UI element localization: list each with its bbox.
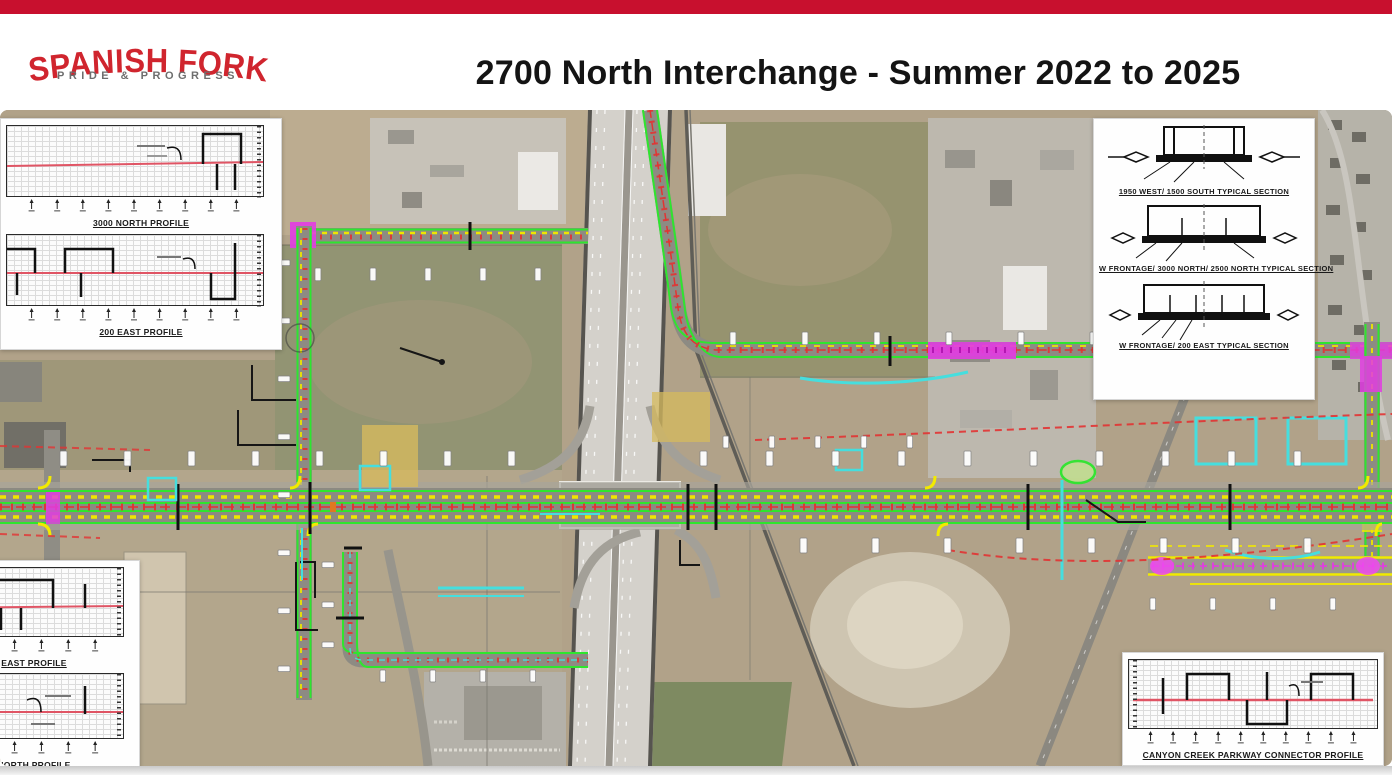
profile-title: 200 EAST PROFILE (6, 327, 276, 337)
section-title: 1950 WEST/ 1500 SOUTH TYPICAL SECTION (1099, 187, 1309, 196)
slide: SPANISH FORK PRIDE & PROGRESS 2700 North… (0, 0, 1392, 775)
logo-tagline: PRIDE & PROGRESS (36, 70, 260, 82)
profile-chart-canyon-creek (1128, 659, 1378, 729)
typical-section-w-frontage-200e: W FRONTAGE/ 200 EAST TYPICAL SECTION (1099, 281, 1309, 350)
inset-profiles-top-left: 3000 NORTH PROFILE 200 EAST PROFILE (0, 118, 282, 350)
section-title: W FRONTAGE/ 200 EAST TYPICAL SECTION (1099, 341, 1309, 350)
profile-chart-north (0, 673, 124, 739)
section-title: W FRONTAGE/ 3000 NORTH/ 2500 NORTH TYPIC… (1099, 264, 1309, 273)
typical-section-1950-west: 1950 WEST/ 1500 SOUTH TYPICAL SECTION (1099, 125, 1309, 196)
inset-profile-bottom-right: CANYON CREEK PARKWAY CONNECTOR PROFILE (1122, 652, 1384, 766)
construction-plan-map: 3000 NORTH PROFILE 200 EAST PROFILE (0, 110, 1392, 766)
bottom-edge-strip (0, 766, 1392, 775)
profile-title: CANYON CREEK PARKWAY CONNECTOR PROFILE (1128, 750, 1378, 760)
top-accent-bar (0, 0, 1392, 14)
inset-profiles-bottom-left: EAST PROFILE NORTH PROFILE (0, 560, 140, 766)
profile-chart-200-east (6, 234, 264, 306)
slide-header: SPANISH FORK PRIDE & PROGRESS 2700 North… (0, 14, 1392, 110)
profile-chart-3000-north (6, 125, 264, 197)
spanish-fork-logo: SPANISH FORK (26, 32, 270, 102)
inset-typical-sections: 1950 WEST/ 1500 SOUTH TYPICAL SECTION W … (1093, 118, 1315, 400)
profile-title: EAST PROFILE (0, 658, 134, 668)
profile-title: 3000 NORTH PROFILE (6, 218, 276, 228)
typical-section-w-frontage-3000n: W FRONTAGE/ 3000 NORTH/ 2500 NORTH TYPIC… (1099, 204, 1309, 273)
profile-chart-east (0, 567, 124, 637)
page-title: 2700 North Interchange - Summer 2022 to … (408, 54, 1308, 93)
